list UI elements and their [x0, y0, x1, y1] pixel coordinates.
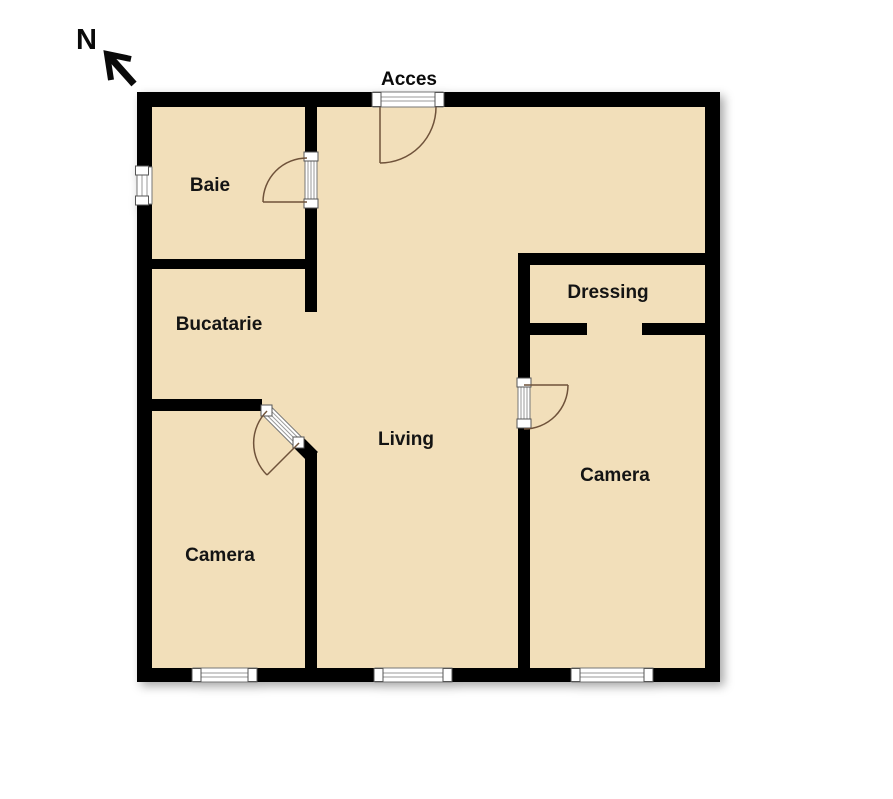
room-label-dressing: Dressing [567, 282, 648, 303]
window-camera1-bottom-wall [192, 668, 257, 682]
floor-plan-page: Baie Bucatarie Camera Living Dressing Ca… [0, 0, 893, 799]
room-label-bucatarie: Bucatarie [176, 314, 263, 335]
room-label-camera-1: Camera [185, 545, 255, 566]
wall-baie-right-lower [305, 208, 317, 312]
window-living-bottom-wall [374, 668, 452, 682]
north-label: N [76, 24, 97, 56]
wall-baie-bottom [152, 259, 310, 269]
wall-dressing-bottom-left [530, 323, 587, 335]
wall-baie-right-upper [305, 107, 317, 153]
window-camera2-bottom-wall [571, 668, 653, 682]
wall-camera2-left [518, 428, 530, 668]
north-indicator: N [76, 24, 134, 84]
room-label-camera-2: Camera [580, 465, 650, 486]
floor-plan-canvas: Baie Bucatarie Camera Living Dressing Ca… [0, 0, 893, 799]
room-label-baie: Baie [190, 175, 230, 196]
floor-area [152, 107, 705, 668]
wall-dressing-top [518, 253, 705, 265]
wall-bucatarie-bottom [152, 399, 262, 411]
wall-living-left [305, 452, 317, 668]
window-baie-left-wall [136, 166, 153, 205]
room-label-living: Living [378, 429, 434, 450]
wall-dressing-bottom-right [642, 323, 705, 335]
entrance-label: Acces [381, 69, 437, 90]
wall-dressing-left [518, 253, 530, 379]
